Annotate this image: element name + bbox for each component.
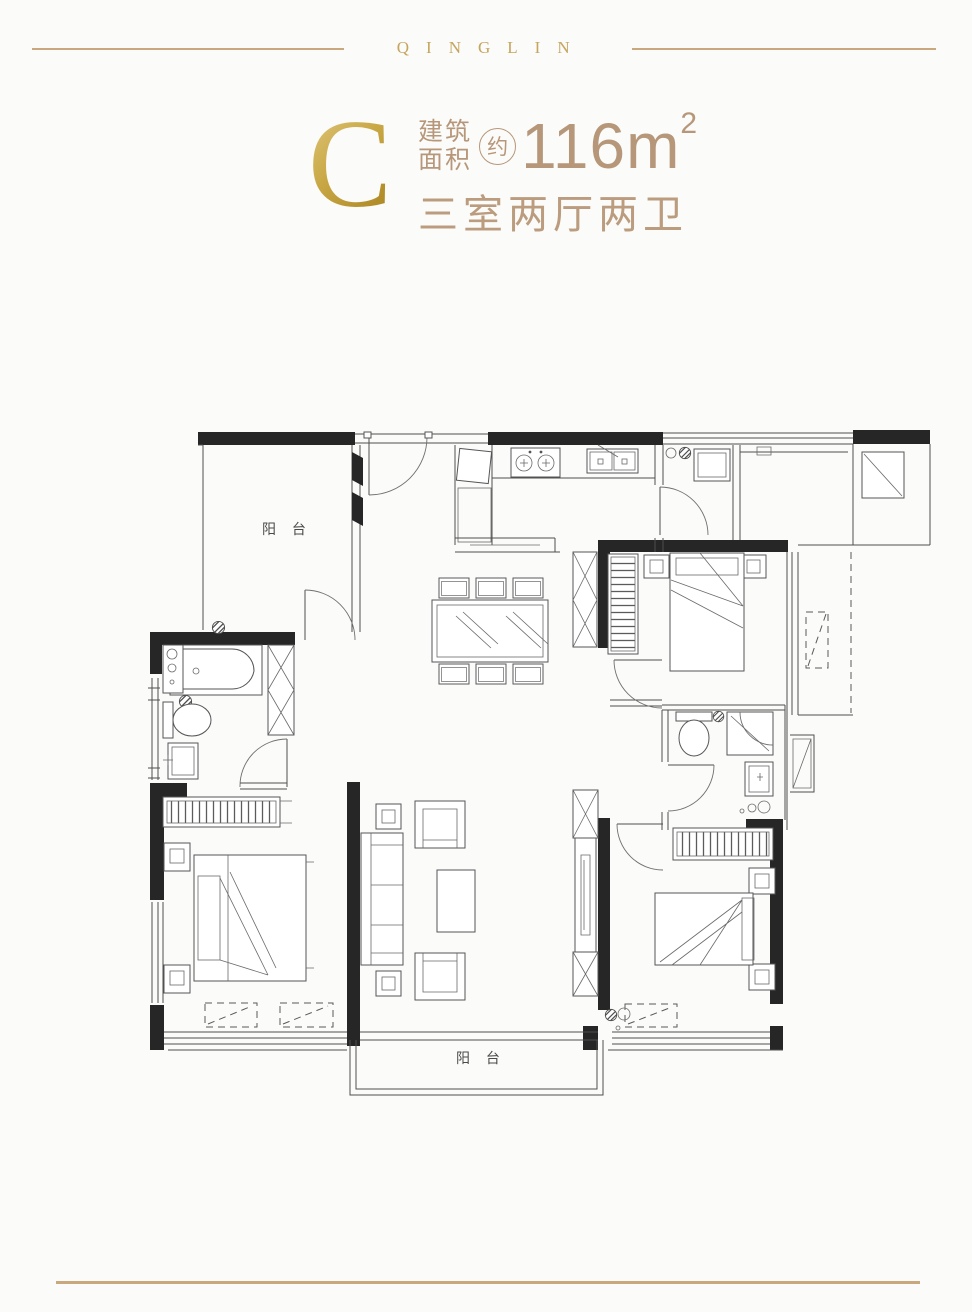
ensuite-door-icon — [668, 765, 714, 811]
nightstand-icon — [164, 965, 190, 993]
tap-icon — [666, 448, 676, 458]
chair-icon — [439, 664, 469, 684]
bedroom-2-door-icon — [617, 824, 663, 870]
bedroom-1 — [163, 797, 333, 1027]
bed-icon — [670, 553, 744, 671]
tv-cabinet-icon — [573, 790, 598, 996]
kitchen-sink-icon — [587, 445, 638, 473]
utility-door-icon — [660, 487, 708, 535]
washing-machine-icon — [694, 449, 730, 481]
bed-icon — [655, 893, 754, 965]
side-table-icon — [376, 804, 401, 829]
bed-icon — [194, 855, 314, 981]
fridge-icon — [456, 448, 491, 483]
floor-drain-icon — [712, 710, 725, 723]
ac-unit-icon — [806, 612, 828, 668]
bathroom-door-icon — [240, 739, 287, 789]
nightstand-icon — [749, 868, 775, 894]
chair-icon — [476, 664, 506, 684]
floor-plan: 阳 台 — [0, 0, 972, 1312]
living-room — [361, 790, 598, 1000]
side-table-icon — [376, 971, 401, 996]
bay-window-icon — [625, 1004, 677, 1027]
wardrobe-icon — [163, 797, 292, 827]
sliding-panel-icon — [352, 452, 363, 486]
chair-icon — [513, 578, 543, 598]
balcony-top-label: 阳 台 — [262, 521, 312, 537]
bathroom-sink-icon — [163, 743, 198, 779]
shaft-icon — [268, 645, 294, 735]
bathtub-icon — [170, 645, 262, 695]
balcony-bottom-label: 阳 台 — [456, 1050, 506, 1066]
armchair-icon — [415, 801, 465, 848]
sofa-icon — [361, 833, 403, 965]
ensuite-bathroom — [668, 710, 773, 813]
chair-icon — [513, 664, 543, 684]
balcony-top: 阳 台 — [211, 452, 363, 640]
entry-door-icon — [364, 432, 432, 495]
nightstand-icon — [741, 555, 766, 578]
bathroom-sink-icon — [745, 762, 773, 796]
shaft-icon — [573, 552, 597, 647]
wardrobe-icon — [673, 828, 773, 860]
master-bedroom — [608, 553, 828, 708]
chair-icon — [476, 578, 506, 598]
wardrobe-icon — [608, 554, 638, 654]
nightstand-icon — [644, 555, 669, 578]
armchair-icon — [415, 953, 465, 1000]
dining-table-icon — [432, 600, 548, 662]
wash-cabinet-icon — [163, 645, 183, 693]
sliding-panel-icon — [352, 492, 363, 526]
balcony-bottom: 阳 台 — [350, 1008, 630, 1095]
utility-room — [660, 446, 730, 535]
bedroom-2 — [617, 824, 775, 1027]
bay-window-icon — [205, 1003, 257, 1027]
dining-area — [432, 552, 597, 684]
toilet-icon — [163, 702, 211, 738]
master-bedroom-door-icon — [614, 660, 662, 708]
chair-icon — [439, 578, 469, 598]
gold-divider-line-bottom — [56, 1281, 920, 1284]
shower-icon — [727, 712, 773, 755]
balcony-door-icon — [305, 590, 355, 640]
bay-window-icon — [280, 1003, 333, 1027]
washer-hookup-icon — [740, 801, 770, 813]
tap-icon — [618, 1008, 630, 1020]
nightstand-icon — [749, 964, 775, 990]
floor-drain-icon — [604, 1008, 618, 1022]
stove-icon — [511, 448, 560, 477]
coffee-table-icon — [437, 870, 475, 932]
floor-drain-icon — [678, 446, 692, 460]
counter-cabinet — [458, 488, 491, 542]
nightstand-icon — [164, 843, 190, 871]
toilet-icon — [676, 712, 712, 756]
kitchen — [455, 445, 655, 552]
